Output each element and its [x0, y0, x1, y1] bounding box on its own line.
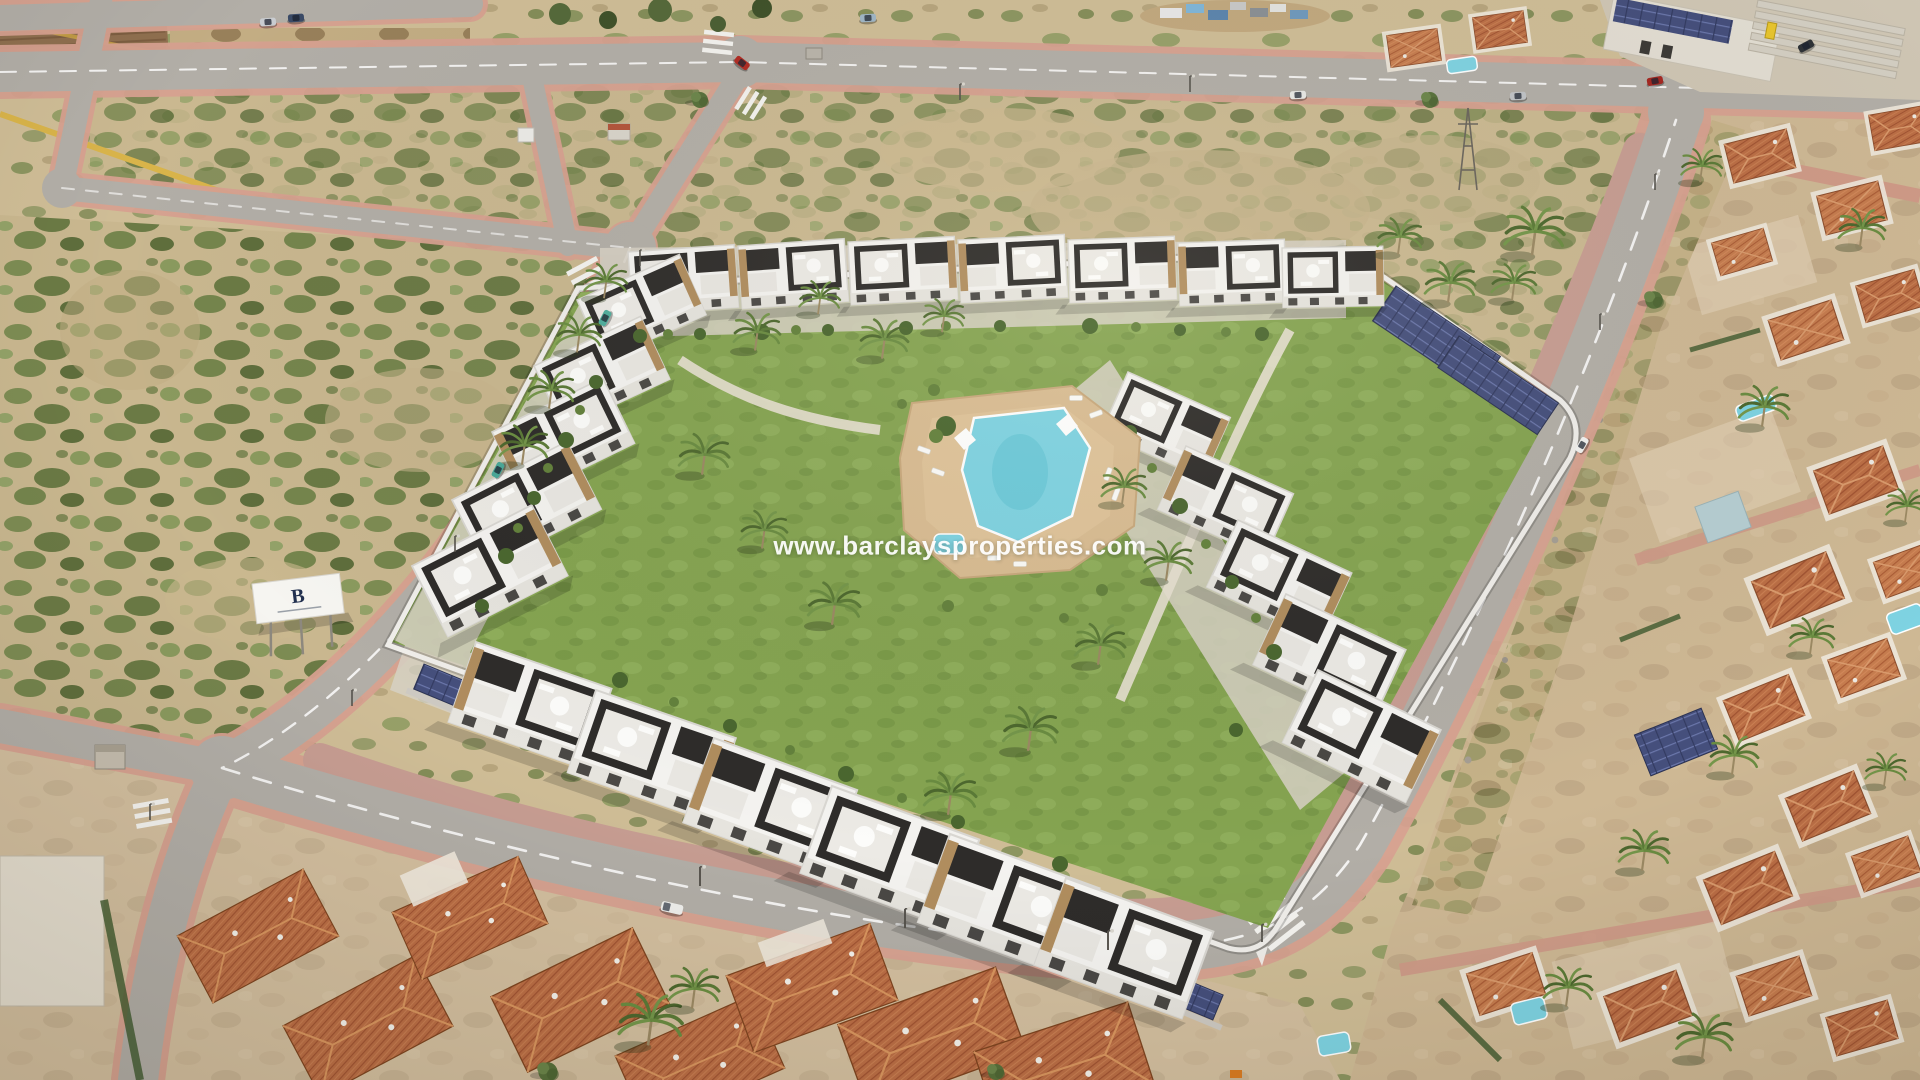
watermark: www.barclaysproperties.com	[773, 531, 1146, 562]
aerial-render-photo: B www.barcla	[0, 0, 1920, 1080]
